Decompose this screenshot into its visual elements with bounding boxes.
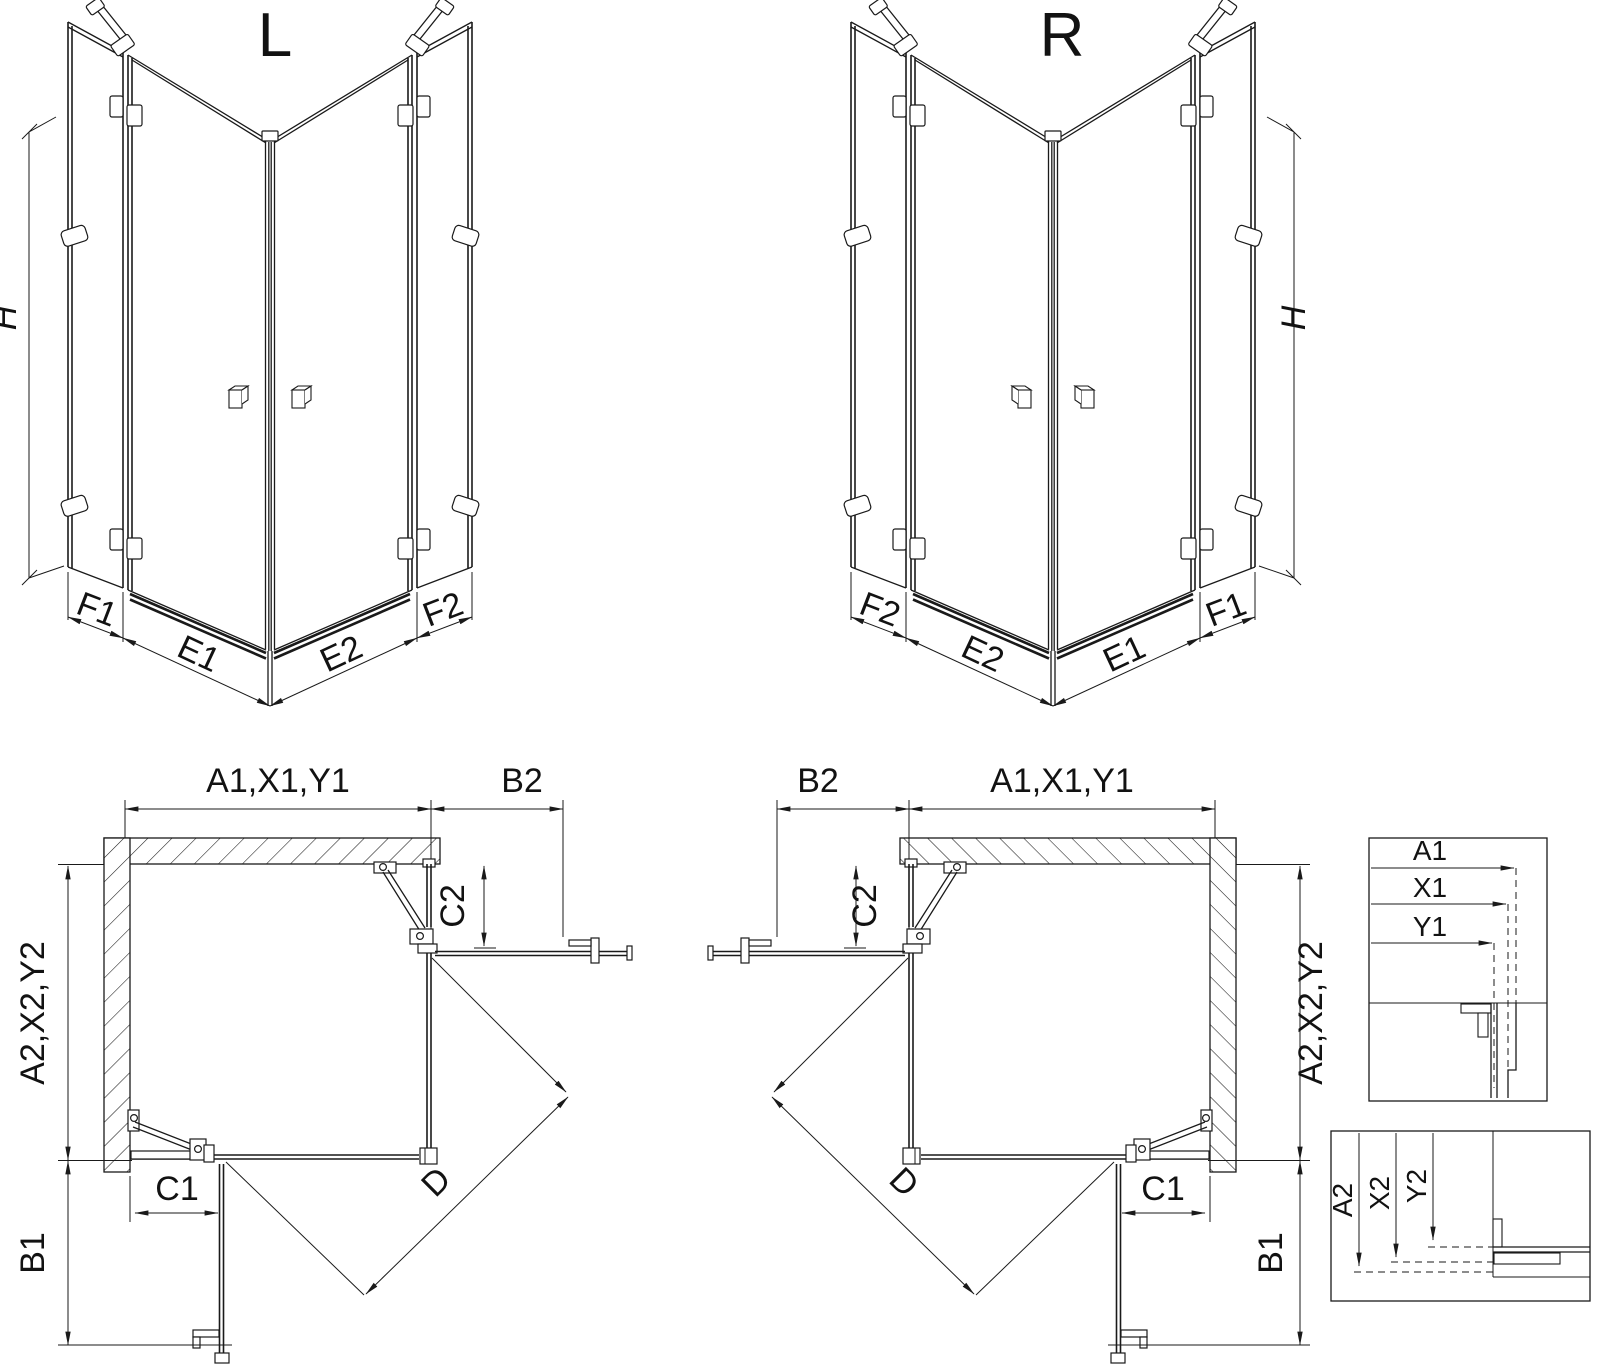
dim-label-f1-right: F1 [1201, 585, 1252, 635]
detail-box-bottom: A2 X2 Y2 [1327, 1131, 1590, 1301]
dim-label-f2-right: F2 [855, 585, 906, 635]
dim-label-b2-right: B2 [797, 762, 839, 800]
shower-enclosure-drawing: L H F1 E1 E2 F2 R H F2 E2 E1 F1 A1,X1,Y1… [0, 0, 1600, 1371]
detail-box-top: A1 X1 Y1 [1369, 835, 1547, 1101]
dim-label-c2-right: C2 [846, 884, 884, 927]
detail-label-x1: X1 [1413, 872, 1447, 903]
dim-label-a2x2y2-left: A2,X2,Y2 [14, 941, 52, 1085]
view-title-right: R [1040, 1, 1085, 70]
dim-label-f1-left: F1 [72, 585, 123, 635]
dim-label-e2-right: E2 [956, 628, 1010, 680]
dim-label-e2-left: E2 [314, 628, 368, 680]
dim-label-h-left: H [0, 305, 24, 330]
dim-label-a1x1y1-left: A1,X1,Y1 [206, 762, 350, 800]
detail-label-a1: A1 [1413, 835, 1447, 866]
detail-label-a2: A2 [1327, 1183, 1358, 1217]
dim-label-c1-left: C1 [155, 1170, 198, 1208]
dim-label-c2-left: C2 [434, 884, 472, 927]
dim-label-e1-right: E1 [1097, 628, 1151, 680]
plan-view-right: B2 A1,X1,Y1 C2 A2,X2,Y2 B1 C1 D [708, 762, 1330, 1363]
dim-label-c1-right: C1 [1141, 1170, 1184, 1208]
dim-label-f2-left: F2 [418, 585, 469, 635]
detail-label-y2: Y2 [1401, 1169, 1432, 1203]
dim-label-h-right: H [1275, 305, 1313, 330]
technical-drawing-page: L H F1 E1 E2 F2 R H F2 E2 E1 F1 A1,X1,Y1… [0, 0, 1600, 1371]
dim-label-d-right: D [882, 1160, 926, 1204]
iso-view-left: L H F1 E1 E2 F2 [0, 0, 480, 706]
dim-label-b1-right: B1 [1252, 1232, 1290, 1274]
dim-label-d-left: D [414, 1160, 458, 1204]
plan-view-left: A1,X1,Y1 B2 C2 A2,X2,Y2 B1 C1 D [14, 762, 632, 1363]
dim-label-a2x2y2-right: A2,X2,Y2 [1292, 941, 1330, 1085]
dim-label-b1-left: B1 [14, 1232, 52, 1274]
detail-label-y1: Y1 [1413, 911, 1447, 942]
detail-label-x2: X2 [1364, 1176, 1395, 1210]
dim-label-e1-left: E1 [172, 628, 226, 680]
view-title-left: L [258, 1, 292, 70]
iso-view-right: R H F2 E2 E1 F1 [843, 0, 1313, 706]
dim-label-a1x1y1-right: A1,X1,Y1 [990, 762, 1134, 800]
dim-label-b2-left: B2 [501, 762, 543, 800]
